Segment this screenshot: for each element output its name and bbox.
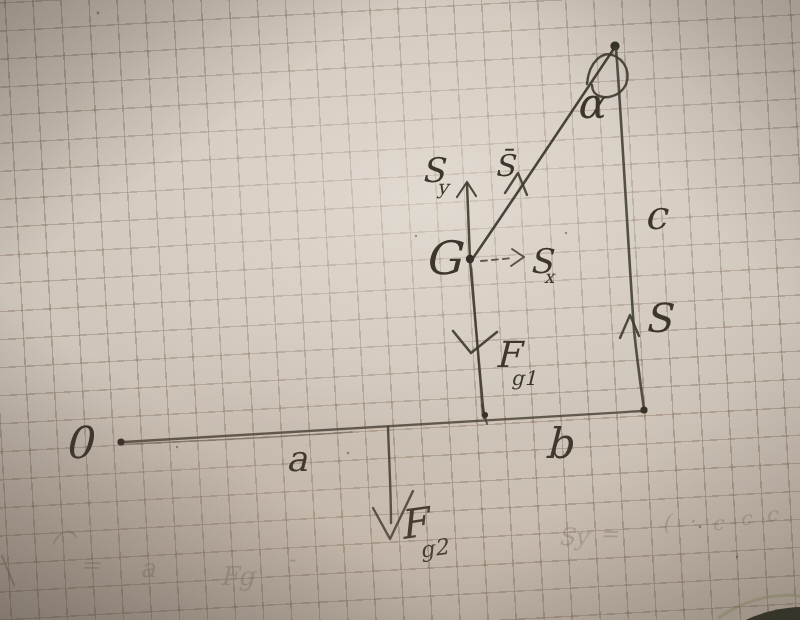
- force-sbar-label: S̄: [494, 148, 517, 183]
- erased-text: Sy: [558, 523, 591, 551]
- force-sx-subscript: x: [544, 266, 556, 287]
- origin-label: 0: [64, 417, 96, 468]
- fg1-arrowhead: [453, 331, 497, 353]
- center-vertical-double-stroke: [472, 268, 482, 416]
- paper-speck: [415, 235, 417, 237]
- length-a-label: a: [286, 438, 308, 479]
- length-b-label: b: [545, 419, 574, 468]
- paper-specks: [97, 12, 739, 559]
- erased-text: c: [712, 511, 725, 535]
- erased-stroke: [54, 531, 76, 543]
- paper-speck: [97, 12, 100, 15]
- force-sy-subscript: y: [436, 175, 451, 199]
- pencil-sketch: 0 a b c G α S S̄ S y S x F g1 F g2 = a F…: [0, 0, 800, 620]
- notebook-photo: 0 a b c G α S S̄ S y S x F g1 F g2 = a F…: [0, 0, 800, 620]
- erased-stroke: [2, 556, 14, 585]
- center-vertical-line: [467, 184, 484, 418]
- s-arrowhead: [620, 315, 639, 338]
- baseline-junction-dot: [482, 412, 488, 418]
- erased-text: =: [80, 551, 101, 579]
- dark-object-corner: [712, 595, 800, 620]
- origin-point-dot: [117, 438, 124, 445]
- paper-speck: [736, 556, 738, 558]
- alpha-label: α: [576, 79, 607, 128]
- paper-speck: [176, 446, 178, 448]
- force-fg2-subscript: g2: [418, 534, 451, 563]
- sx-dashed-line: [481, 258, 513, 261]
- force-fg1-subscript: g1: [511, 366, 537, 390]
- baseline-double-stroke: [126, 432, 352, 444]
- paper-speck: [699, 526, 702, 529]
- erased-text: c: [766, 502, 779, 526]
- right-vertical-line: [616, 48, 644, 409]
- erased-text: ·: [688, 509, 695, 534]
- erased-text: (: [662, 510, 674, 535]
- erased-text: -: [287, 545, 296, 573]
- right-end-dot: [640, 406, 647, 413]
- erased-text: Fg: [220, 561, 258, 591]
- erased-text: =: [600, 521, 619, 546]
- force-fg2-arrow-shaft: [388, 427, 391, 523]
- sx-arrowhead: [511, 249, 524, 266]
- force-s-label: S: [644, 295, 675, 341]
- length-c-label: c: [644, 192, 669, 238]
- paper-speck: [565, 232, 567, 234]
- point-g-label: G: [424, 231, 464, 285]
- paper-speck: [347, 452, 350, 455]
- erased-text: a: [140, 553, 156, 583]
- erased-text: c: [740, 506, 753, 530]
